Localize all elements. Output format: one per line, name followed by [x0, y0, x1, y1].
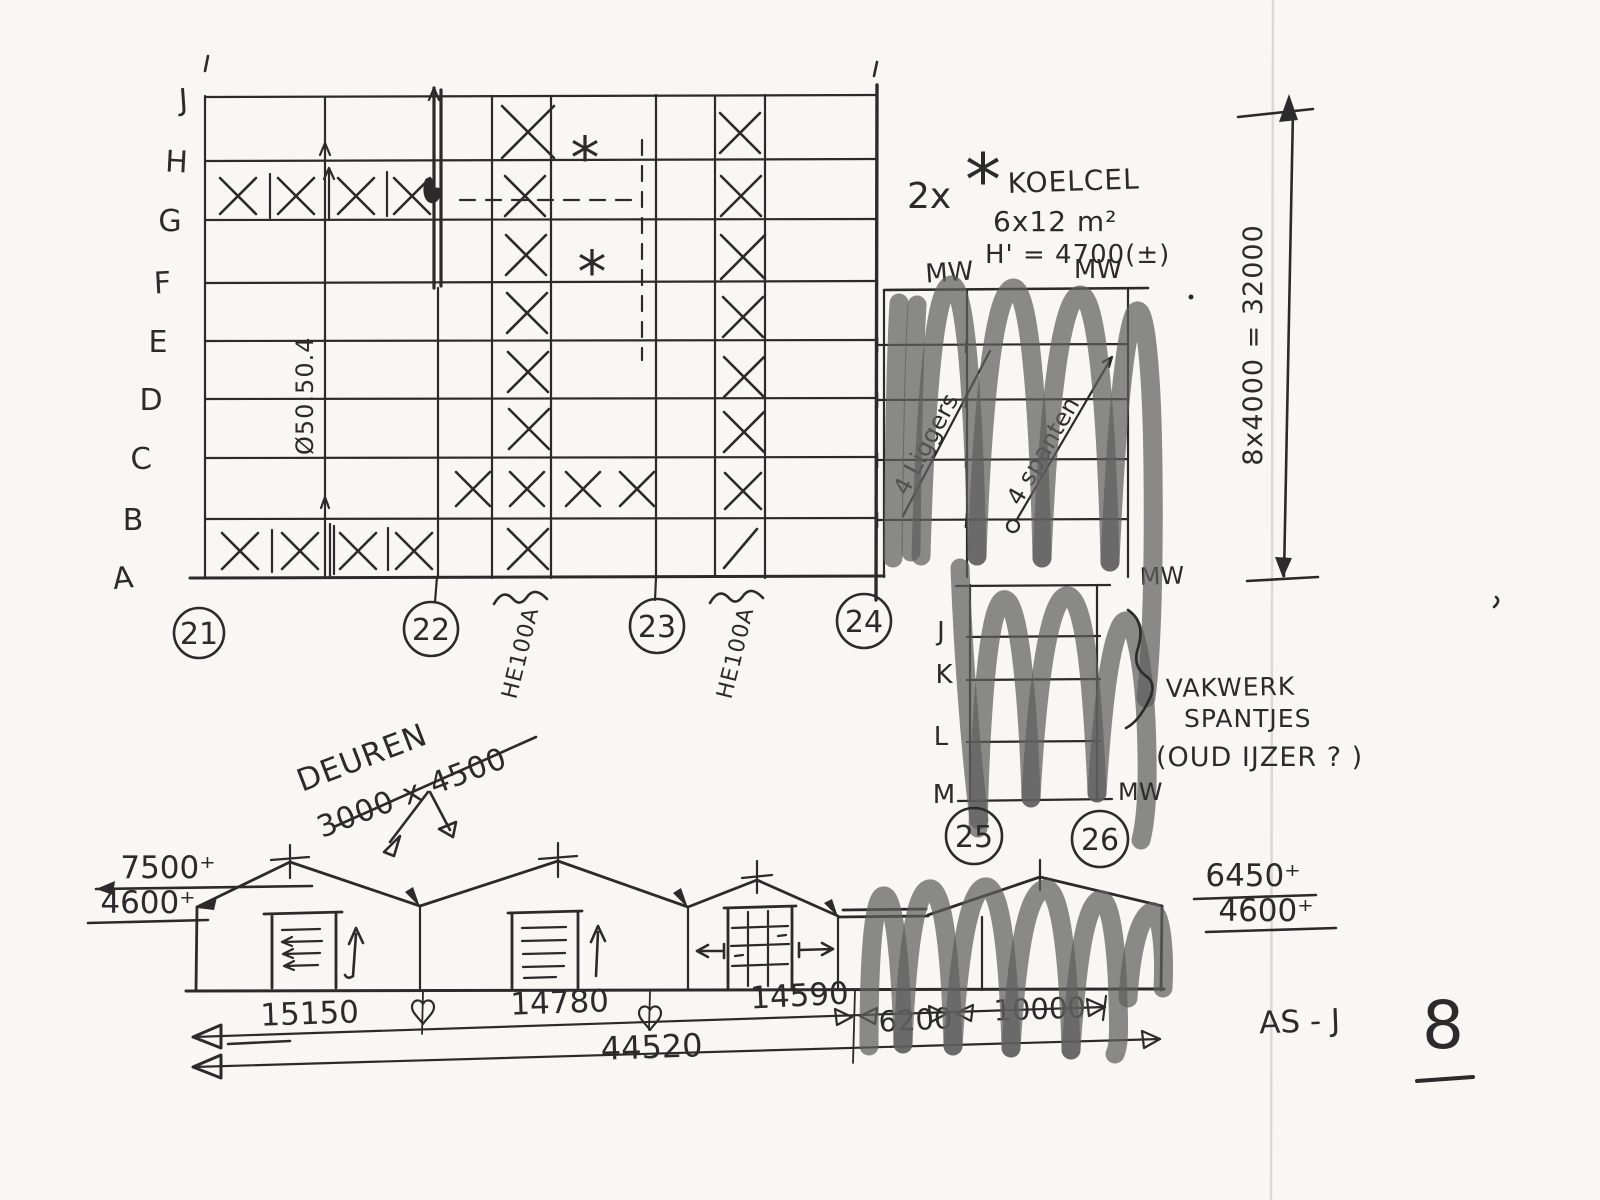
page-number-underline [1417, 1077, 1473, 1081]
x-marks-row-BA [222, 533, 432, 569]
dimension-arrow-top [1279, 94, 1298, 122]
axis-number: 23 [638, 610, 676, 645]
beam-brace [710, 591, 763, 603]
axis-markers: 21 22 23 24 HE100A HE100A [174, 577, 891, 701]
doors-note: DEUREN 3000 x 4500 [292, 717, 536, 856]
stray-dot [1189, 295, 1194, 300]
row-label: B [123, 503, 144, 538]
row-label: J [176, 83, 189, 119]
row-label: E [149, 325, 168, 360]
asterisk-mark: * [571, 124, 600, 192]
up-arrow-icon [591, 926, 605, 976]
row-label: D [139, 383, 162, 418]
axis-number: 22 [412, 613, 450, 648]
row-label: H [164, 144, 188, 180]
door-2-slats [522, 927, 566, 978]
axis-number: 26 [1081, 823, 1119, 858]
page-number: 8 [1422, 987, 1464, 1064]
asterisk-mark: * [578, 238, 607, 306]
axis-number: 25 [955, 820, 993, 855]
level-text: 4600⁺ [1218, 893, 1313, 929]
x-marks-column-1 [502, 106, 554, 569]
dim-text: 14590 [749, 975, 849, 1016]
row-label: M [933, 780, 955, 810]
row-label: K [935, 660, 953, 690]
up-arrow-icon [345, 928, 363, 978]
koelcel-note: 2x * KOELCEL 6x12 m² H' = 4700(±) [907, 138, 1170, 270]
koelcel-size: 6x12 m² [993, 205, 1117, 238]
level-text: 7500⁺ [120, 850, 215, 886]
leader-origin-circle [1007, 520, 1019, 532]
elevation-drawing: 15150 14780 14590 6200 10000 44520 7500⁺… [88, 843, 1336, 1078]
beam-note: HE100A [713, 605, 760, 702]
level-text: 6450⁺ [1205, 858, 1300, 894]
truss-note-line: (OUD IJZER ? ) [1156, 742, 1363, 773]
row-label: G [158, 204, 181, 239]
koelcel-qty: 2x [907, 176, 951, 217]
door-3-lattice [731, 911, 789, 986]
koelcel-name: KOELCEL [1007, 162, 1140, 200]
dimension-text: 8x4000 = 32000 [1238, 224, 1269, 466]
grid-baseline-A [190, 576, 884, 578]
sketch-canvas: J H G F E D C B A * * Ø50.50.4 21 22 23 … [0, 0, 1600, 1200]
axis-number: 21 [180, 617, 218, 652]
row-label: F [153, 266, 172, 302]
dim-text: 15150 [260, 994, 360, 1033]
door-1 [264, 912, 342, 988]
grid-vertical-lines [205, 95, 765, 578]
row-label: J [935, 617, 945, 647]
doors-arrowhead [439, 822, 456, 837]
scanned-sketch-page: J H G F E D C B A * * Ø50.50.4 21 22 23 … [0, 0, 1600, 1200]
dim-total-text: 44520 [600, 1026, 703, 1068]
row-label: C [129, 441, 153, 478]
row-label: A [111, 560, 136, 597]
overall-height-dimension: 8x4000 = 32000 [1238, 94, 1318, 581]
left-arrow-icon [697, 944, 724, 958]
beam-note: HE100A [498, 605, 545, 702]
stray-pen-marks [205, 56, 1498, 607]
x-marks-row-CB [456, 472, 654, 506]
level-text: 4600⁺ [100, 885, 195, 921]
dim-text: 6200 [878, 1001, 953, 1039]
beam-brace [494, 592, 547, 604]
row-label: L [934, 722, 949, 752]
mw-label: MW [1118, 778, 1162, 806]
roof-dart [197, 897, 217, 910]
door-1-slats [282, 929, 322, 970]
truss-note-line: SPANTJES [1184, 704, 1311, 733]
dim-text: 14780 [510, 983, 610, 1022]
right-arrow-icon [799, 943, 833, 957]
dim-tick [228, 1041, 290, 1044]
dimension-arrow-bottom [1275, 557, 1292, 578]
axis-number: 24 [845, 605, 883, 640]
mw-label: MW [1074, 255, 1122, 285]
axis-reference-note: AS - J [1259, 1003, 1341, 1042]
door-3 [724, 906, 796, 988]
truss-note-line: VAKWERK [1166, 672, 1296, 703]
steel-profile-note: Ø50.50.4 [291, 337, 319, 456]
